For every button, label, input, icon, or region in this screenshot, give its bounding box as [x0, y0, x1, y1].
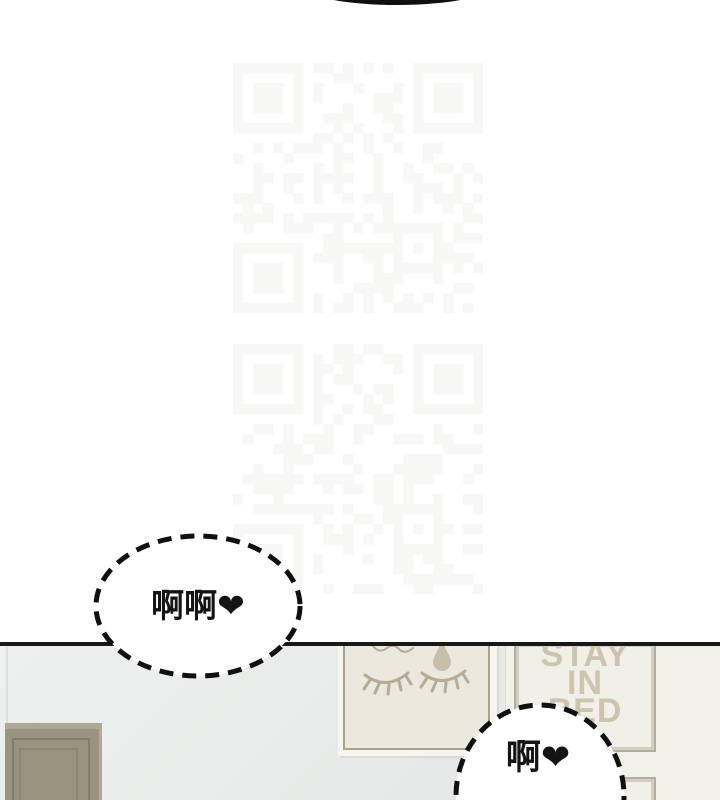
- cabinet-panel-line: [19, 748, 78, 800]
- comic-page: STAY IN BED: [0, 0, 720, 800]
- cabinet: [5, 723, 102, 800]
- black-oval: [299, 0, 495, 5]
- qr-watermark-top: [233, 63, 483, 313]
- teardrop-icon: [433, 645, 451, 671]
- right-closed-eye-icon: [421, 671, 468, 692]
- wall-corner-line: [6, 647, 8, 729]
- left-closed-eye-icon: [364, 673, 411, 694]
- script-squiggle: [373, 646, 413, 652]
- speech-bubble-1-text: 啊啊❤: [90, 586, 306, 626]
- speech-bubble-2-text: 啊❤: [452, 738, 624, 778]
